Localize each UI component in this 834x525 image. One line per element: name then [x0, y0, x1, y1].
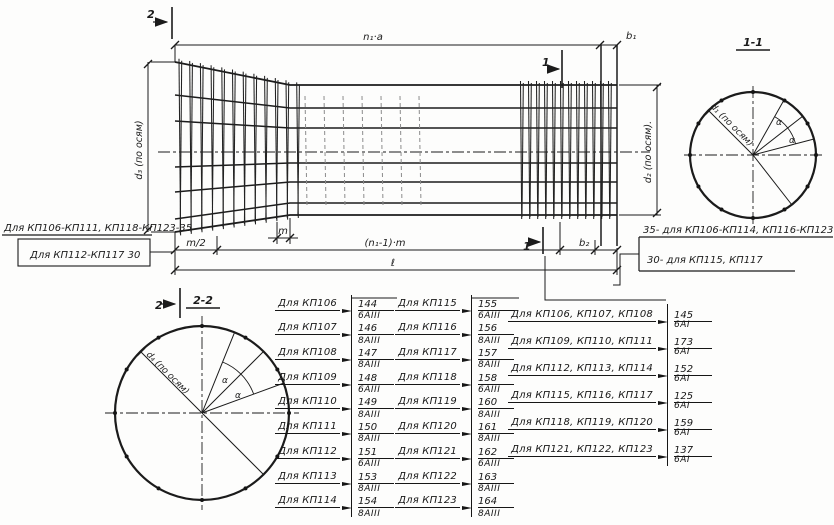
row-value: 137 6АI	[667, 439, 716, 466]
table-row: Для КП118, КП119, КП120 159 6АI	[500, 412, 716, 439]
row-label: Для КП115, КП116, КП117	[508, 390, 656, 403]
dim-m-half-label: m/2	[186, 238, 205, 249]
table-kp115-kp123: Для КП115 155 6АIII Для КП116 156 8АIII …	[340, 295, 518, 518]
row-label: Для КП106	[275, 298, 340, 311]
section-mark-2-top: 2	[147, 8, 155, 21]
row-value: 164 8АIII	[471, 493, 518, 518]
table-row: Для КП122 163 8АIII	[340, 468, 518, 493]
dim-d3-label: d₃ (по осям)	[134, 120, 145, 179]
table-row: Для КП121 162 6АIII	[340, 443, 518, 468]
row-label: Для КП117	[395, 347, 460, 360]
note-right-2: 30- для КП115, КП117	[647, 255, 763, 266]
cage-longitudinal-bars	[158, 45, 650, 246]
row-label: Для КП108	[275, 347, 340, 360]
row-label: Для КП109, КП110, КП111	[508, 336, 656, 349]
table-row: Для КП117 157 8АIII	[340, 344, 518, 369]
row-label: Для КП116	[395, 322, 460, 335]
dimension-lines	[148, 45, 666, 300]
note-left-2: Для КП112-КП117 30	[29, 250, 140, 261]
row-label: Для КП111	[275, 421, 340, 434]
d1-radius-label: d₁ (по осям)	[708, 102, 755, 149]
table-row: Для КП109, КП110, КП111 173 6АI	[500, 331, 716, 358]
bar-class: 6АI	[674, 347, 690, 357]
section-mark-1-top: 1	[542, 56, 550, 69]
note-right-1: 35- для КП106-КП114, КП116-КП123	[643, 225, 833, 236]
row-value: 152 6АI	[667, 358, 716, 385]
table-row: Для КП115 155 6АIII	[340, 295, 518, 320]
row-label: Для КП109	[275, 372, 340, 385]
table-kp-groups: Для КП106, КП107, КП108 145 6АI Для КП10…	[500, 304, 716, 467]
table-row: Для КП106, КП107, КП108 145 6АI	[500, 304, 716, 331]
table-row: Для КП116 156 8АIII	[340, 320, 518, 345]
bar-class: 8АIII	[478, 509, 500, 519]
alpha-label: α	[776, 118, 782, 128]
row-label: Для КП112	[275, 446, 340, 459]
table-row: Для КП123 164 8АIII	[340, 493, 518, 518]
section-title-1-1: 1-1	[743, 36, 763, 49]
dim-b1-label: b₁	[626, 31, 636, 42]
row-label: Для КП118, КП119, КП120	[508, 417, 656, 430]
row-value: 173 6АI	[667, 331, 716, 358]
row-label: Для КП115	[395, 298, 460, 311]
alpha-label: α	[789, 136, 795, 146]
row-label: Для КП123	[395, 495, 460, 508]
table-row: Для КП120 161 8АIII	[340, 418, 518, 443]
row-label: Для КП121, КП122, КП123	[508, 444, 656, 457]
right-spiral-zone	[521, 81, 612, 219]
bar-class: 6АI	[674, 374, 690, 384]
section-1-1-view: 1-1 α α d₁ (по осям)	[684, 36, 822, 224]
row-value: 145 6АI	[667, 304, 716, 331]
bar-class: 6АI	[674, 320, 690, 330]
row-label: Для КП119	[395, 396, 460, 409]
row-label: Для КП120	[395, 421, 460, 434]
table-row: Для КП112, КП113, КП114 152 6АI	[500, 358, 716, 385]
d4-radius-label: d₄ (по осям)	[144, 350, 191, 397]
table-row: Для КП115, КП116, КП117 125 6АI	[500, 385, 716, 412]
dim-b2-label: b₂	[579, 238, 589, 249]
left-notes: Для КП106-КП111, КП118-КП123-35 Для КП11…	[2, 223, 192, 266]
bar-class: 6АI	[674, 401, 690, 411]
row-label: Для КП118	[395, 372, 460, 385]
section-mark-1-bottom: 1	[523, 240, 531, 253]
row-label: Для КП121	[395, 446, 460, 459]
row-label: Для КП110	[275, 396, 340, 409]
bar-class: 6АI	[674, 455, 690, 465]
table-row: Для КП121, КП122, КП123 137 6АI	[500, 439, 716, 466]
technical-drawing-sheet: { "drawing": { "marks": { "one": "1", "t…	[0, 0, 834, 525]
dim-d2-label: d₂ (по осям).	[643, 121, 654, 183]
row-label: Для КП107	[275, 322, 340, 335]
table-row: Для КП119 160 8АIII	[340, 394, 518, 419]
note-left-1: Для КП106-КП111, КП118-КП123-35	[3, 223, 192, 234]
row-value: 159 6АI	[667, 412, 716, 439]
right-notes: 35- для КП106-КП114, КП116-КП123 30- для…	[613, 225, 833, 285]
row-label: Для КП114	[275, 495, 340, 508]
bar-class: 6АI	[674, 428, 690, 438]
row-label: Для КП112, КП113, КП114	[508, 363, 656, 376]
dim-span-label: (n₁-1)·m	[364, 238, 405, 249]
row-label: Для КП113	[275, 471, 340, 484]
position-number: 164	[478, 496, 514, 508]
left-spiral-zone	[179, 59, 299, 236]
row-label: Для КП122	[395, 471, 460, 484]
dim-top-label: n₁·а	[363, 32, 383, 43]
position-number: 163	[478, 472, 514, 484]
row-label: Для КП106, КП107, КП108	[508, 309, 656, 322]
dim-length-label: ℓ	[391, 258, 395, 269]
middle-spiral-sketch	[305, 96, 421, 206]
dim-m-label: m	[278, 226, 288, 237]
row-value: 163 8АIII	[471, 468, 518, 493]
row-value: 125 6АI	[667, 385, 716, 412]
section-mark-2-bottom: 2	[155, 299, 163, 312]
table-row: Для КП118 158 6АIII	[340, 369, 518, 394]
section-title-2-2: 2-2	[193, 294, 213, 307]
